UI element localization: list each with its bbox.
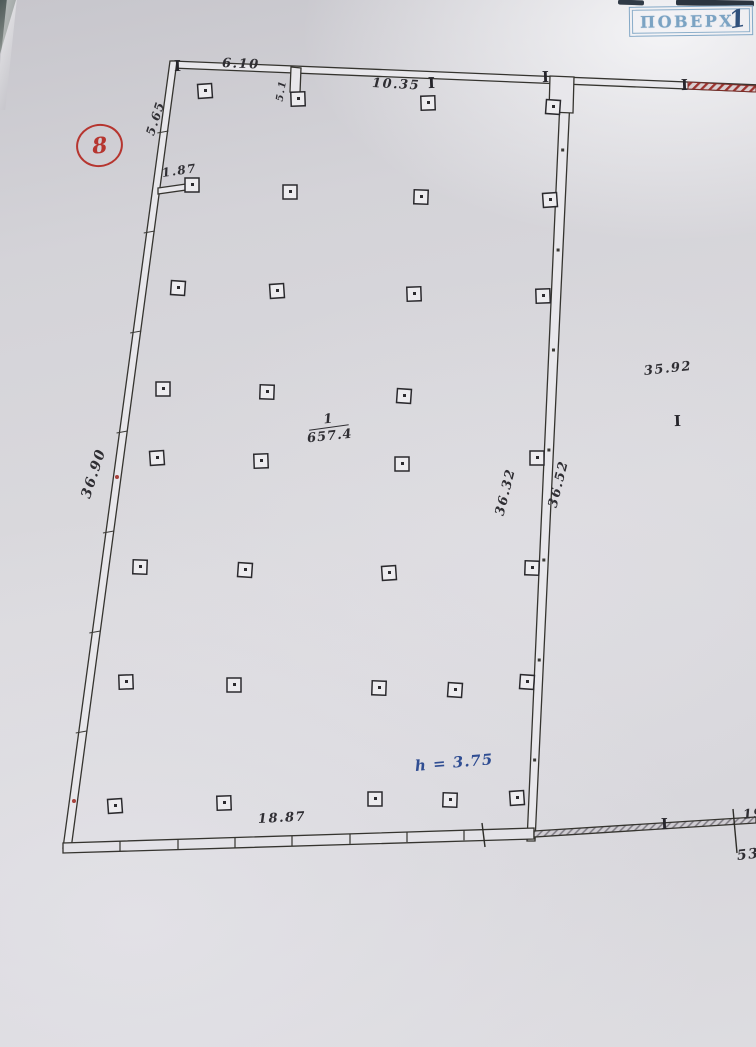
red-speck	[115, 475, 119, 479]
column-dot	[177, 286, 180, 289]
column-dot	[454, 688, 457, 691]
column-dot	[378, 686, 381, 689]
floor-plan-photo: ПОВЕРХ 1 8 6.10 5.1 10.35 5.65 1.87 36.9…	[0, 0, 756, 1047]
column-dot	[162, 387, 165, 390]
left-stub-wall	[158, 184, 186, 194]
dimension-tick	[733, 809, 737, 853]
wall-dot	[533, 759, 536, 762]
wall-dot	[542, 559, 545, 562]
column-marker: I	[174, 59, 182, 74]
column-marker: I	[661, 817, 669, 832]
dim-edge-lower: 53	[736, 846, 756, 864]
column-dot	[536, 456, 539, 459]
columns-and-ticks	[72, 84, 737, 853]
column-dot	[526, 680, 529, 683]
column-dot	[139, 565, 142, 568]
column-dot	[266, 390, 269, 393]
column-dot	[125, 680, 128, 683]
dim-bottom: 18.87	[258, 809, 307, 827]
column-marker: I	[674, 414, 682, 429]
column-dot	[289, 190, 292, 193]
wall-dot	[547, 449, 550, 452]
column-dot	[374, 797, 377, 800]
column-dot	[244, 568, 247, 571]
column-dot	[156, 456, 159, 459]
column-dot	[388, 571, 391, 574]
wall-dot	[557, 249, 560, 252]
column-marker: I	[681, 78, 689, 93]
sheet-mark-number: 8	[91, 134, 109, 157]
column-dot	[413, 292, 416, 295]
column-dot	[233, 683, 236, 686]
column-dot	[552, 105, 555, 108]
column-marker: I	[428, 76, 436, 91]
column-dot	[114, 804, 117, 807]
column-dot	[427, 101, 430, 104]
column-dot	[276, 289, 279, 292]
floor-stamp-label: ПОВЕРХ	[640, 11, 734, 31]
room-label: 1 657.4	[299, 410, 360, 447]
column-dot	[191, 183, 194, 186]
column-dot	[542, 294, 545, 297]
column-dot	[420, 195, 423, 198]
column-dot	[516, 796, 519, 799]
wall-dot	[538, 659, 541, 662]
dim-edge-upper: 19	[742, 806, 756, 823]
column-dot	[223, 801, 226, 804]
wall-dot	[552, 349, 555, 352]
column-dot	[260, 459, 263, 462]
dim-top-left: 6.10	[222, 56, 260, 73]
hatched-wall-section	[688, 82, 756, 92]
column-dot	[449, 798, 452, 801]
column-dot	[401, 462, 404, 465]
column-dot	[204, 89, 207, 92]
top-stub-wall	[290, 67, 301, 93]
column-dot	[531, 566, 534, 569]
column-dot	[549, 198, 552, 201]
dim-top-right: 10.35	[372, 76, 421, 94]
bottom-wall	[63, 828, 534, 853]
red-speck	[72, 799, 76, 803]
column-dot	[403, 394, 406, 397]
column-marker: I	[542, 70, 550, 85]
bottom-right-wall	[534, 817, 756, 837]
wall-dot	[561, 149, 564, 152]
column-dot	[297, 97, 300, 100]
